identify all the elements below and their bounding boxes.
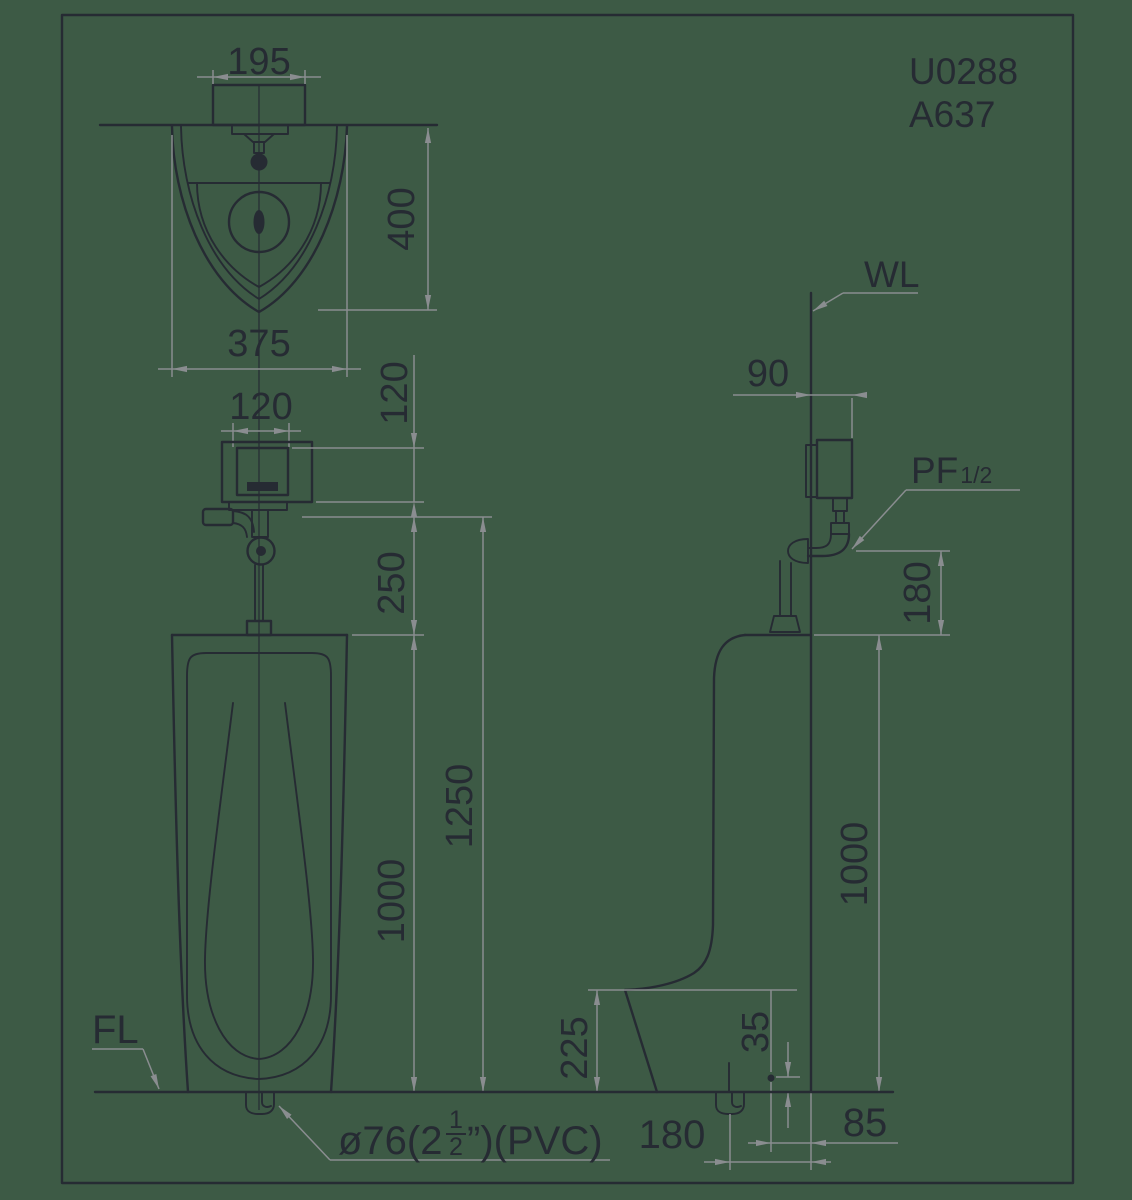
technical-drawing-page: U0288 A637 195 [0,0,1132,1200]
dim-lip-to-floor-value: 225 [554,1016,596,1079]
drain-fraction-denominator: 2 [449,1133,463,1161]
inlet-spud [251,154,268,171]
dim-supply-height-value: 1250 [439,764,481,849]
drain-slot-top [254,210,265,234]
floor-line-text: FL [92,1008,139,1052]
dim-drain-from-wall-value: 180 [639,1113,706,1157]
dim-rim-to-floor-front-value: 1000 [371,859,413,944]
dim-anchor-from-wall-value: 85 [843,1101,888,1145]
dim-valve-width-value: 120 [229,386,292,428]
dim-supply-drop-value: 180 [897,561,939,624]
model-code: U0288 [909,51,1018,92]
dim-valve-height-value: 120 [374,361,416,424]
dim-valve-to-rim-value: 250 [371,551,413,614]
dim-mount-width-value: 195 [227,41,290,83]
wall-line-text: WL [864,254,920,295]
valve-code: A637 [909,94,995,135]
dim-valve-from-wall-value: 90 [747,353,789,395]
dim-anchor-height-value: 35 [735,1011,777,1053]
drain-spec-prefix: ø76(2 [338,1119,443,1163]
anchor-hole [768,1075,775,1082]
sensor-window [247,482,278,491]
dim-rim-to-floor-side-value: 1000 [834,822,876,907]
drain-spec-suffix: ”)(PVC) [467,1119,603,1163]
drain-fraction-numerator: 1 [449,1106,463,1134]
dim-bowl-width-value: 375 [227,323,290,365]
dim-bowl-depth-value: 400 [381,187,423,250]
urinal-installation-drawing: U0288 A637 195 [0,0,1132,1200]
